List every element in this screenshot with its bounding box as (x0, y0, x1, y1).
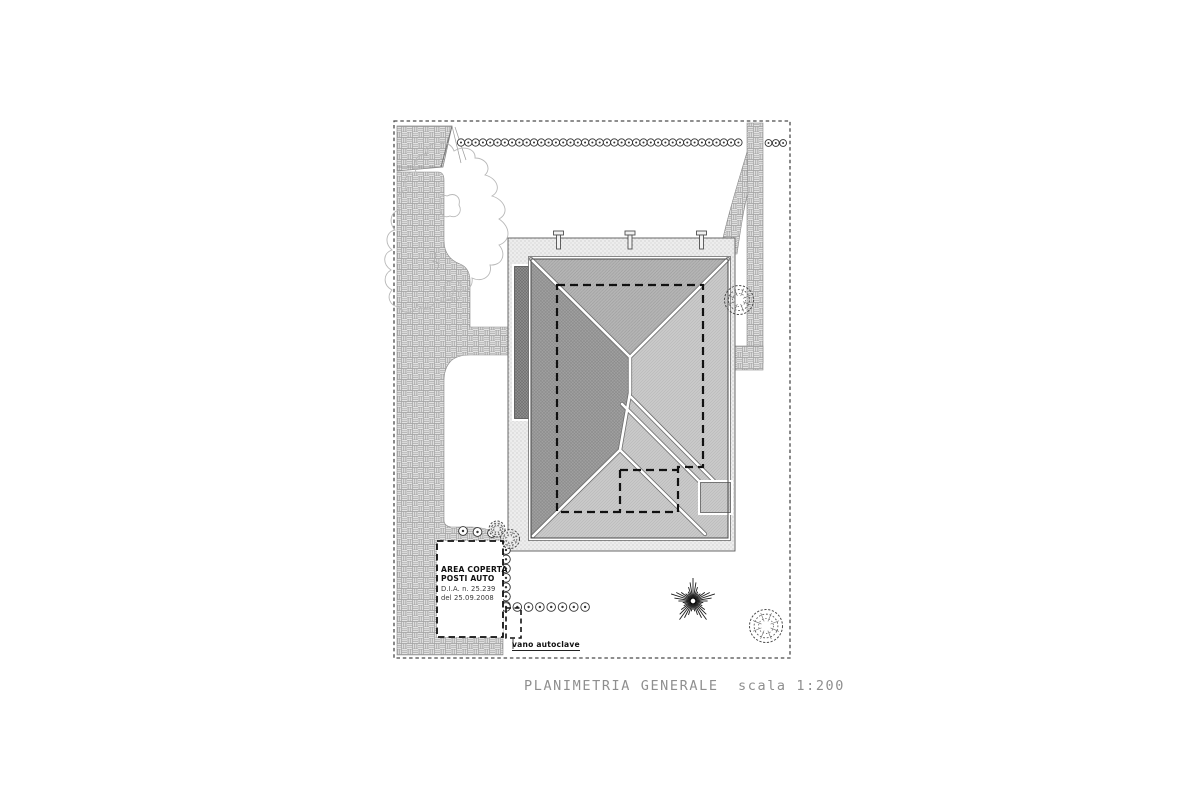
hedge-row-top-right (765, 140, 786, 147)
hedge-row-bottom (502, 603, 590, 612)
vano-autoclave-label: vano autoclave (512, 640, 580, 651)
entrance-gate-area (397, 126, 466, 171)
palm-tree (671, 578, 715, 620)
area-coperta-line4: del 25.09.2008 (441, 594, 503, 602)
round-tree-bottom-right (750, 610, 783, 643)
site-plan-page: AREA COPERTA POSTI AUTO D.I.A. n. 25.239… (0, 0, 1200, 800)
area-coperta-line3: D.I.A. n. 25.239 (441, 585, 503, 593)
plan-title: PLANIMETRIA GENERALE scala 1:200 (524, 678, 845, 694)
hedge-row-top (457, 139, 742, 146)
area-coperta-label: AREA COPERTA POSTI AUTO D.I.A. n. 25.239… (441, 566, 503, 602)
area-coperta-line2: POSTI AUTO (441, 575, 503, 584)
